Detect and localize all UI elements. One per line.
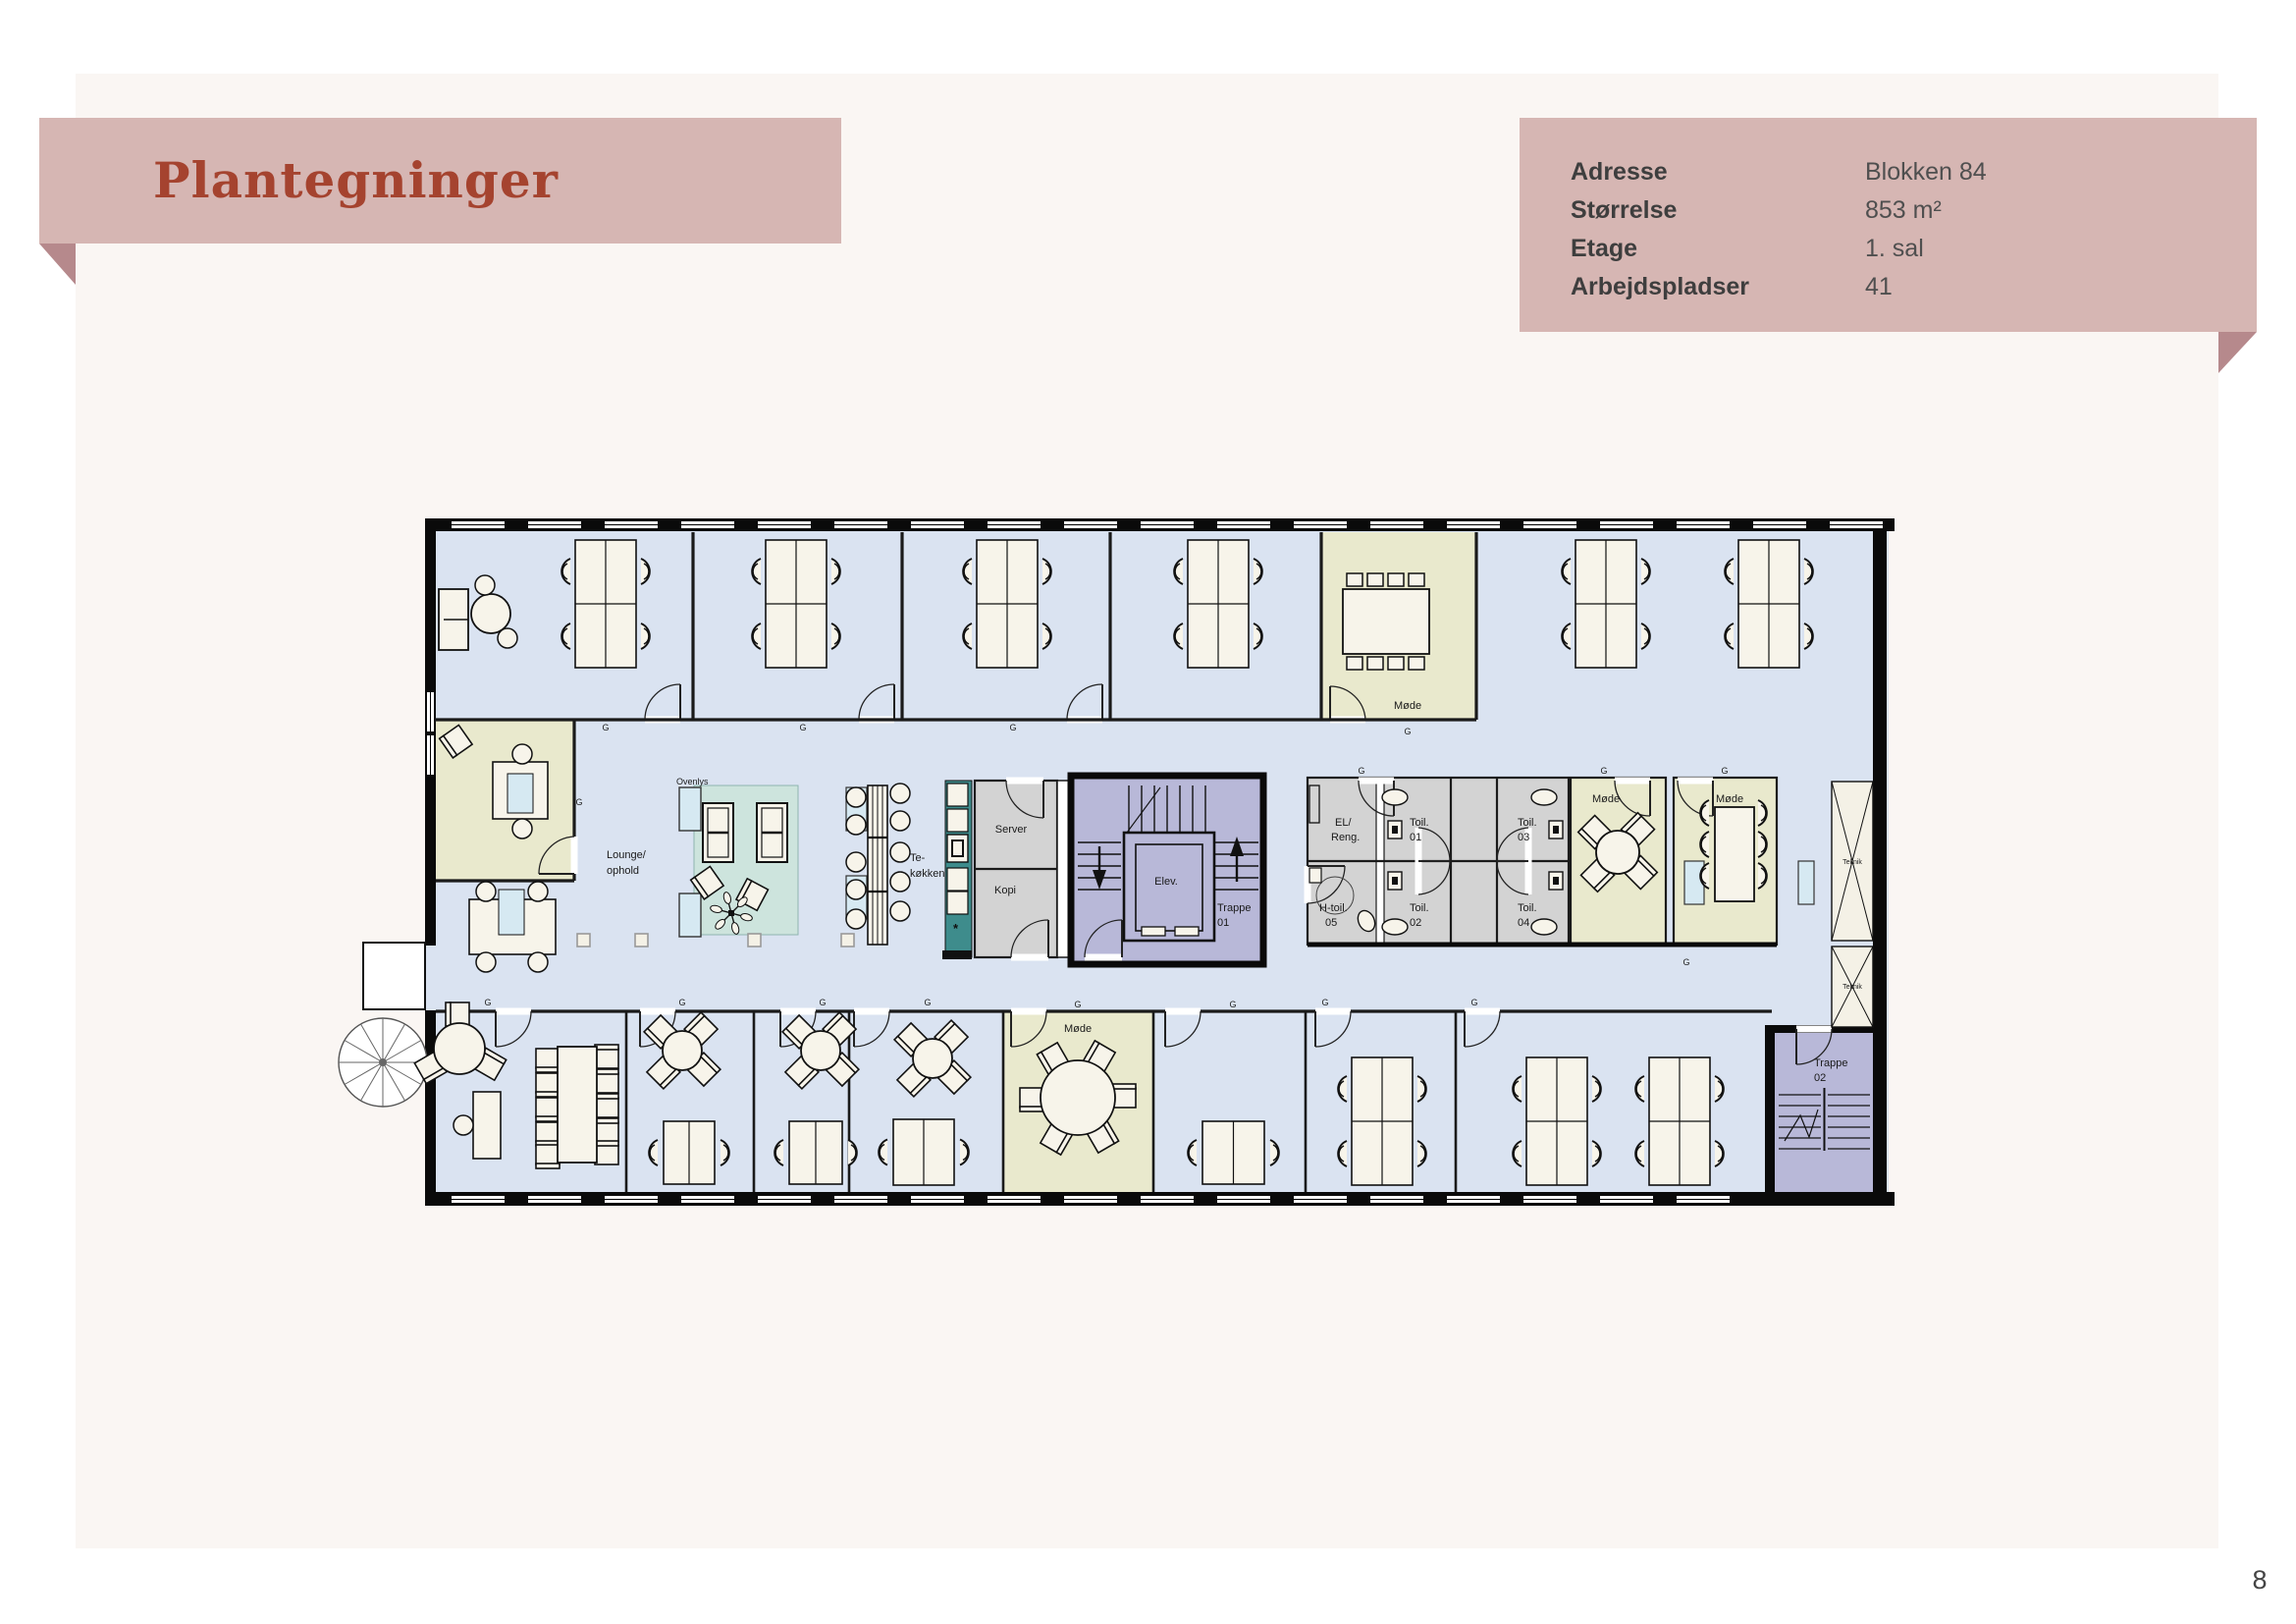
chair-icon [528,882,548,901]
plan-room-label: Toil. [1410,902,1429,914]
chair-icon [536,1145,560,1168]
outer-wall-right [1873,518,1887,1206]
info-row-stoerrelse: Størrelse 853 m² [1571,191,2257,230]
plan-room-label: Teknik [1842,984,1862,991]
chair-icon [890,842,910,862]
info-label: Størrelse [1571,191,1865,230]
chair-icon [890,784,910,803]
chair-icon [536,1073,560,1097]
chair-icon [454,1115,473,1135]
chair-icon [476,952,496,972]
info-value: Blokken 84 [1865,153,1987,191]
door-g-mark: G [1721,766,1728,776]
plan-room-label: Møde [1064,1023,1092,1035]
plan-room-label: 03 [1518,832,1529,843]
chair-icon [595,1045,618,1068]
chair-icon [846,815,866,835]
outer-wall-left [425,518,436,1206]
plan-room-label: 01 [1410,832,1421,843]
plan-room-label: 04 [1518,917,1529,929]
chair-icon [595,1141,618,1164]
door-g-mark: G [1470,998,1477,1007]
chair-icon [846,787,866,807]
door-g-mark: G [1229,1000,1236,1009]
column-marker [635,934,648,947]
plan-room-label: Trappe [1814,1057,1847,1069]
plan-room-label: ophold [607,865,639,877]
plan-room-label: Reng. [1331,832,1360,843]
round-table [471,594,510,633]
plan-room-label: Lounge/ [607,849,647,861]
door-g-mark: G [1600,766,1607,776]
door-g-mark: G [799,723,806,732]
chair-icon [528,952,548,972]
door-g-mark: G [1682,957,1689,967]
chair-icon [536,1049,560,1072]
plan-room-label: Trappe [1217,902,1251,914]
desk-cluster [752,540,840,668]
column-marker [577,934,590,947]
desk-pad [507,774,533,813]
plan-room-label: 01 [1217,917,1229,929]
plan-room-label: 02 [1814,1072,1826,1084]
column-marker [748,934,761,947]
info-label: Etage [1571,230,1865,268]
plan-room-label: EL/ [1335,817,1352,829]
info-panel-fold [2218,332,2257,373]
desk-cluster [561,540,650,668]
desk-cluster [1562,540,1650,668]
info-value: 1. sal [1865,230,1924,268]
skylight [679,893,701,937]
chair-icon [475,575,495,595]
room-trappe-02 [1773,1029,1883,1192]
sofa [703,803,733,862]
plan-room-label: Møde [1716,793,1743,805]
door-g-mark: G [602,723,609,732]
chair-icon [536,1122,560,1146]
plan-room-label: Møde [1592,793,1620,805]
chair-icon [595,1118,618,1142]
floor-plan: *OvenlysLounge/opholdTe-køkkenServerKopi… [329,506,1899,1213]
info-value: 853 m² [1865,191,1942,230]
long-meeting-table [536,1045,618,1168]
door-g-mark: G [1009,723,1016,732]
door-g-mark: G [924,998,931,1007]
info-row-adresse: Adresse Blokken 84 [1571,153,2257,191]
chair-icon [890,901,910,921]
chair-icon [536,1098,560,1121]
chair-icon [846,852,866,872]
page-title: Plantegninger [39,118,841,209]
plan-room-label: Elev. [1154,876,1178,888]
desk-cluster [963,540,1051,668]
plan-room-label: 02 [1410,917,1421,929]
chair-icon [512,819,532,839]
chair-icon [846,909,866,929]
plan-room-label: Teknik [1842,859,1862,866]
chair-icon [595,1069,618,1093]
chair-icon [595,1094,618,1117]
plan-room-label: Ovenlys [676,777,709,786]
plan-room-label: Toil. [1518,817,1537,829]
plan-room-label: Toil. [1518,902,1537,914]
chair-icon [476,882,496,901]
page-number: 8 [2240,1565,2279,1596]
door-g-mark: G [575,797,582,807]
desk-pad [499,890,524,935]
door-g-mark: G [1358,766,1364,776]
spiral-stair [339,943,427,1107]
chair-icon [512,744,532,764]
plan-room-label: H-toil. [1319,902,1348,914]
banner-fold [39,244,76,285]
door-g-mark: G [819,998,826,1007]
info-row-etage: Etage 1. sal [1571,230,2257,268]
desk-cluster [1174,540,1262,668]
info-value: 41 [1865,268,1893,306]
chair-icon [890,811,910,831]
door-g-mark: G [1074,1000,1081,1009]
door-g-mark: G [1321,998,1328,1007]
desk-cluster [1513,1057,1601,1185]
property-info-rows: Adresse Blokken 84 Størrelse 853 m² Etag… [1520,118,2257,306]
plan-room-label: Kopi [994,885,1016,896]
plan-room-label: Server [995,824,1028,836]
stair-landing [363,943,425,1009]
door-g-mark: G [1404,727,1411,736]
info-row-arbejdspladser: Arbejdspladser 41 [1571,268,2257,306]
plan-room-label: Te- [910,852,926,864]
plan-room-label: Møde [1394,700,1421,712]
plan-room-label: køkken [910,868,944,880]
skylight [679,787,701,831]
property-info-panel: Adresse Blokken 84 Størrelse 853 m² Etag… [1520,118,2257,332]
chair-icon [846,880,866,899]
door-g-mark: G [678,998,685,1007]
desk-cluster [1635,1057,1724,1185]
sofa [757,803,787,862]
chair-icon [890,872,910,892]
plan-room-label: 05 [1325,917,1337,929]
column-marker [841,934,854,947]
plan-room-label: Toil. [1410,817,1429,829]
info-label: Arbejdspladser [1571,268,1865,306]
desk-cluster [1725,540,1813,668]
info-label: Adresse [1571,153,1865,191]
desk-cluster [1338,1057,1426,1185]
sideboard [1798,861,1814,904]
door-g-mark: G [484,998,491,1007]
chair-icon [498,628,517,648]
side-desk [473,1092,501,1159]
title-banner: Plantegninger [39,118,841,244]
